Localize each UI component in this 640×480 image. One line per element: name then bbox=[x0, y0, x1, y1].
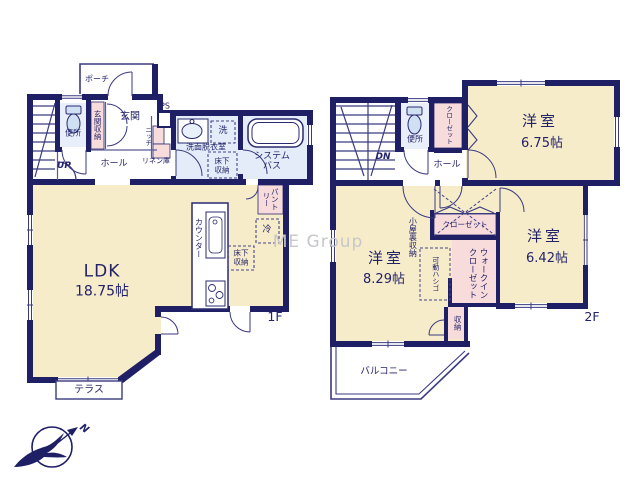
toilet-1f-label: 便所 bbox=[65, 130, 81, 139]
porch-label: ポーチ bbox=[85, 76, 109, 85]
room1-name-label: 洋室 bbox=[522, 113, 558, 130]
ps-shaft bbox=[158, 112, 171, 127]
pantry-label: パントリー bbox=[262, 186, 279, 212]
bathtub-icon bbox=[248, 119, 303, 147]
storage-label: 収納 bbox=[453, 316, 461, 331]
entrance-label: 玄関 bbox=[120, 112, 140, 123]
ldk-name-label: LDK bbox=[84, 263, 121, 282]
walkin-closet-label: ウォークインクローゼット bbox=[466, 245, 488, 301]
room2-size-label: 8.29帖 bbox=[363, 273, 405, 287]
stairs-down-label: DN bbox=[375, 153, 390, 163]
linen-label: リネン庫 bbox=[142, 158, 170, 166]
ladder-label: 可動ハシゴ bbox=[431, 257, 439, 292]
closet-south-label: クローゼット bbox=[443, 221, 488, 229]
room3-size-label: 6.42帖 bbox=[526, 252, 568, 266]
ps-label: PS bbox=[160, 103, 170, 112]
floor2-plan bbox=[330, 80, 620, 400]
counter-label: カウンター bbox=[194, 218, 203, 258]
toilet-2f-label: 便所 bbox=[407, 136, 423, 145]
hall-1f-label: ホール bbox=[100, 160, 127, 170]
room1-size-label: 6.75帖 bbox=[521, 137, 563, 151]
sink-icon bbox=[178, 119, 208, 143]
underfloor-storage-1-label: 床下収納 bbox=[214, 157, 231, 174]
watermark: ME Group bbox=[273, 232, 364, 252]
underfloor-storage-2-label: 床下収納 bbox=[233, 249, 250, 266]
room3-name-label: 洋室 bbox=[527, 228, 563, 245]
compass-icon bbox=[14, 427, 78, 467]
room2-name-label: 洋室 bbox=[368, 250, 404, 267]
attic-storage-label: 小屋裏収納 bbox=[408, 217, 417, 257]
hall-2f-label: ホール bbox=[433, 161, 460, 171]
stairs-up-label: UP bbox=[57, 162, 71, 172]
entrance-storage-label: 玄関収納 bbox=[93, 110, 101, 140]
floor1-tag: 1F bbox=[267, 310, 282, 324]
balcony-label: バルコニー bbox=[360, 367, 407, 377]
stairs-down-icon bbox=[336, 103, 395, 180]
washroom-label: 洗面脱衣室 bbox=[186, 144, 226, 153]
bath-label: システムバス bbox=[252, 152, 292, 173]
closet-north-label: クローゼット bbox=[444, 106, 451, 145]
niche-label: ニッチ bbox=[143, 126, 150, 146]
washer-label: 洗 bbox=[218, 127, 227, 137]
ldk-size-label: 18.75帖 bbox=[75, 284, 129, 299]
fridge-label: 冷 bbox=[262, 226, 271, 236]
floorplan-canvas: ポーチ 便所 玄関収納 玄関 PS ニッチ リネン庫 ホール UP 洗面脱衣室 … bbox=[0, 0, 640, 480]
terrace-label: テラス bbox=[74, 385, 104, 396]
floor2-tag: 2F bbox=[584, 310, 599, 324]
toilet-icon-2f bbox=[407, 107, 422, 134]
